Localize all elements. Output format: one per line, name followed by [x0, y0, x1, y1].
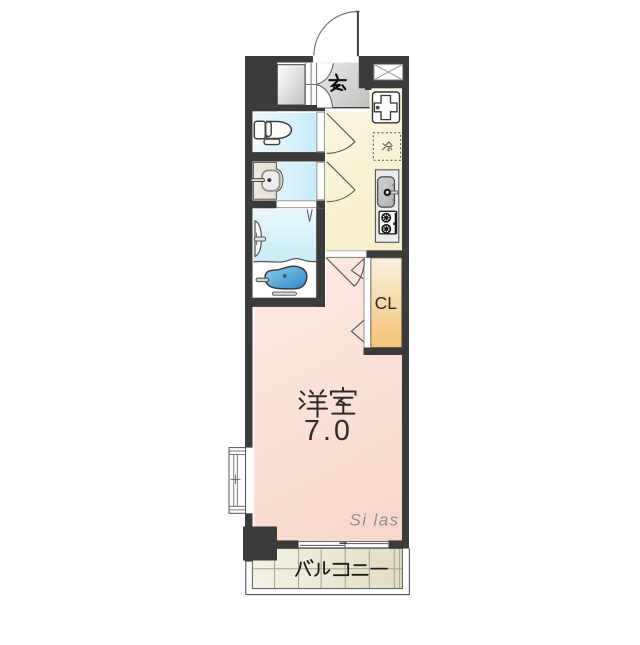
svg-text:Si las: Si las	[350, 511, 400, 530]
svg-text:7.0: 7.0	[304, 415, 353, 447]
svg-text:CL: CL	[375, 293, 398, 313]
